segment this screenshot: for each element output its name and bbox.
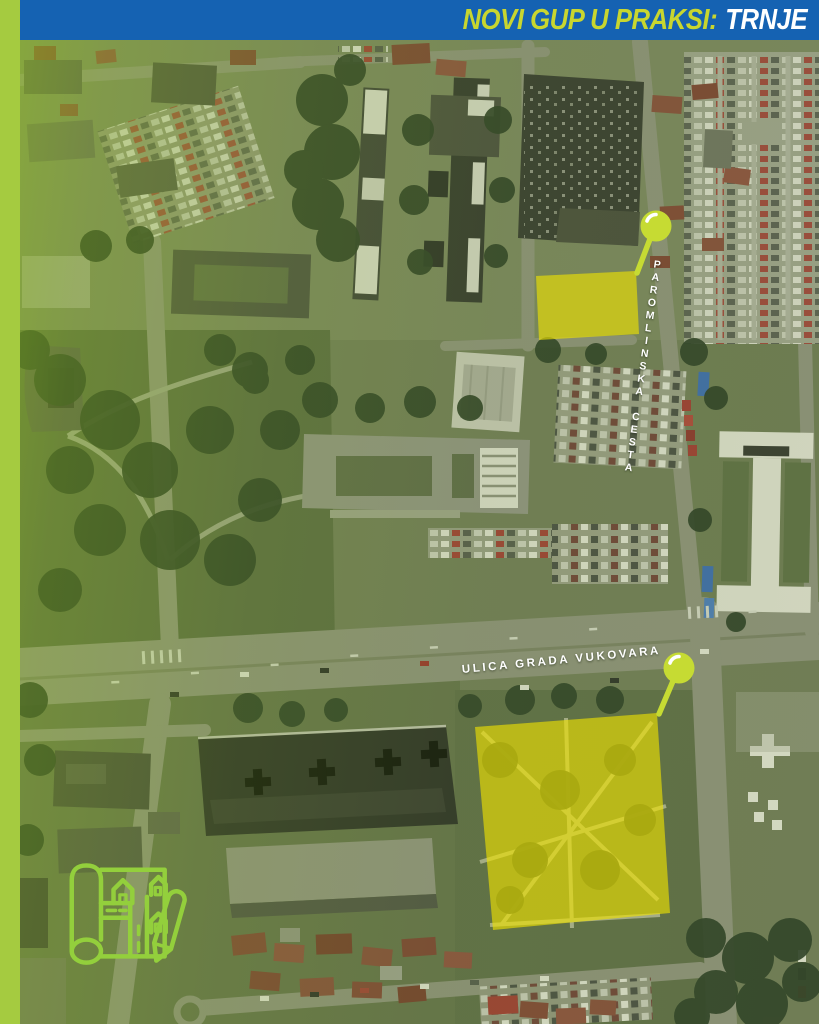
- header-title-group: NOVI GUP U PRAKSI:TRNJE: [463, 4, 819, 37]
- trnje-infographic: ULICA GRADA VUKOVARA PAROMLINSKA CESTA N…: [0, 0, 819, 1024]
- accent-bar: [0, 0, 20, 1024]
- city-plan-icon: [63, 853, 187, 971]
- header-banner: NOVI GUP U PRAKSI:TRNJE: [20, 0, 819, 40]
- header-title-highlight: TRNJE: [725, 4, 807, 36]
- header-title: NOVI GUP U PRAKSI:: [463, 4, 718, 36]
